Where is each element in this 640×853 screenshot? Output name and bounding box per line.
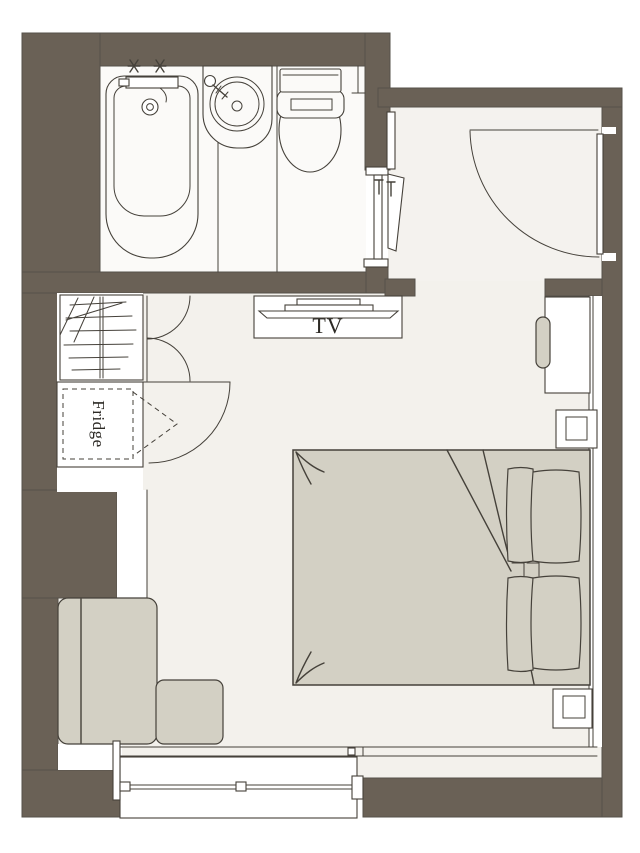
entry-hall-floor (388, 107, 602, 281)
faucet-bar (126, 77, 178, 88)
ottoman (156, 680, 223, 744)
wall-band-stub-right (545, 279, 602, 296)
door-frame-notch-bottom (602, 253, 616, 261)
bathroom-door-jamb-bottom (364, 259, 388, 267)
toilet-tank (280, 69, 341, 92)
entry-side-cabinet (387, 112, 395, 169)
sofa (58, 598, 157, 744)
pillow-bottom-front (531, 576, 581, 670)
toilet-seat (277, 90, 344, 118)
tv-stand-wide (285, 305, 373, 311)
fridge-label: Fridge (89, 400, 108, 447)
wall-bottom (363, 778, 622, 817)
pillow-top-front (531, 470, 581, 563)
wall-pocket-below-sofa (58, 744, 122, 770)
closet-with-hangers (60, 295, 143, 380)
wall-right (602, 107, 622, 817)
desk (545, 297, 590, 393)
floor-plan-drawing: Fridge TV (0, 0, 640, 853)
window-latch (348, 748, 355, 755)
bathroom-door-track (374, 175, 382, 259)
entry-opening-floor (413, 279, 547, 299)
window-jamb-left (113, 741, 120, 800)
toilet (277, 69, 344, 172)
faucet-end (119, 79, 129, 86)
pillow-top-back (507, 468, 535, 563)
balcony-door-handle-left (120, 782, 130, 791)
desk-chair (536, 317, 550, 368)
balcony-door-handle-middle (236, 782, 246, 791)
washbasin (203, 66, 272, 148)
window-return-strip-right (589, 296, 602, 747)
bathtub (106, 60, 198, 258)
wall-band-bathroom (22, 272, 367, 293)
tv-stand-small (297, 299, 360, 305)
wall-left-bathroom (22, 33, 100, 275)
shower-control-outer (142, 99, 158, 115)
wall-bottom-left (22, 770, 122, 817)
tv-console: TV (254, 296, 402, 338)
door-frame-notch-top (602, 127, 616, 134)
wall-left-block (22, 490, 117, 598)
closet-box (60, 295, 143, 380)
bathroom-door-jamb-top (366, 167, 388, 175)
wall-band-stub-left (385, 279, 415, 296)
floor-strip-left (117, 490, 147, 598)
floor-plan-page: Fridge TV (0, 0, 640, 853)
double-bed (293, 450, 590, 685)
tv-label: TV (312, 313, 343, 338)
balcony-door-end-cap (352, 776, 363, 799)
pillow-bottom-back (507, 577, 535, 672)
wall-entry-top-band (378, 88, 622, 107)
entrance-door-closed-leaf (597, 134, 603, 254)
side-table-upper (556, 410, 597, 448)
side-table-lower (553, 689, 592, 728)
